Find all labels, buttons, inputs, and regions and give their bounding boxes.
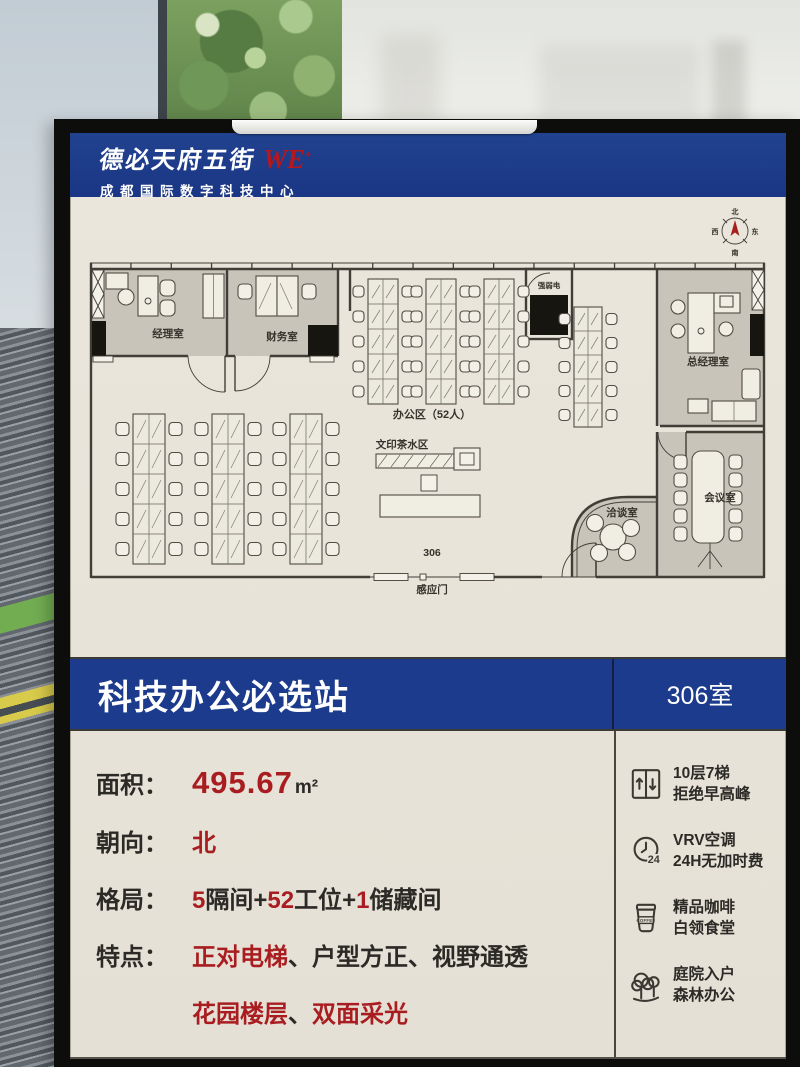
- svg-text:24: 24: [648, 854, 660, 866]
- feature-seg: 户型方正: [312, 937, 408, 972]
- trees-icon: [628, 967, 664, 1003]
- amenity-line1: VRV空调: [673, 830, 763, 851]
- amenity-text: VRV空调 24H无加时费: [673, 830, 763, 872]
- feature-seg: 、: [408, 937, 432, 972]
- amenity-hvac: 24 VRV空调 24H无加时费: [628, 830, 786, 872]
- detail-row-area: 面积： 495.67 m²: [96, 765, 614, 801]
- glass-reflection: [712, 40, 746, 130]
- label-print-tea: 文印茶水区: [375, 438, 429, 451]
- layout-seg: 1: [356, 887, 369, 915]
- room-label-gm: 总经理室: [687, 355, 729, 368]
- detail-label: 面积：: [96, 765, 192, 800]
- details-section: 面积： 495.67 m² 朝向： 北 格局： 5 隔间+ 52 工位+: [70, 731, 786, 1059]
- area-unit: m²: [295, 777, 318, 799]
- amenity-elevator: 10层7梯 拒绝早高峰: [628, 763, 786, 805]
- poster-header: 德必天府五街WE+ 成都国际数字科技中心: [70, 133, 786, 197]
- amenity-garden: 庭院入户 森林办公: [628, 964, 786, 1006]
- layout-seg: 储藏间: [369, 880, 441, 915]
- feature-seg: 、: [288, 994, 312, 1029]
- elevator-icon: [628, 766, 664, 802]
- we-logo-sup: +: [305, 149, 311, 161]
- glass-reflection: [540, 45, 700, 120]
- feature-seg: 花园楼层: [192, 994, 288, 1029]
- detail-label: 朝向：: [96, 823, 192, 858]
- floor-plan: 北 东 南 西: [70, 197, 786, 657]
- label-sensor-door: 感应门: [416, 583, 448, 596]
- feature-seg: 正对电梯: [192, 937, 288, 972]
- amenity-line2: 24H无加时费: [673, 851, 763, 872]
- area-value: 495.67: [192, 765, 293, 801]
- svg-text:北: 北: [732, 207, 739, 216]
- feature-seg: 视野通透: [432, 937, 528, 972]
- feature-seg: 、: [288, 937, 312, 972]
- orientation-value: 北: [192, 823, 216, 858]
- striped-carpet: [0, 328, 60, 1067]
- svg-text:东: 东: [752, 227, 759, 236]
- feature-seg: 双面采光: [312, 994, 408, 1029]
- amenity-text: 10层7梯 拒绝早高峰: [673, 763, 751, 805]
- room-label-manager: 经理室: [152, 327, 184, 340]
- room-label-finance: 财务室: [265, 330, 298, 343]
- amenity-line2: 拒绝早高峰: [673, 784, 751, 805]
- svg-text:南: 南: [732, 248, 739, 257]
- glass-reflection: [380, 35, 440, 125]
- amenity-line1: 精品咖啡: [673, 897, 735, 918]
- room-label-meeting: 会议室: [704, 491, 736, 504]
- detail-row-layout: 格局： 5 隔间+ 52 工位+ 1 储藏间: [96, 880, 614, 915]
- layout-seg: 工位+: [294, 880, 356, 915]
- svg-text:COFFEE: COFFEE: [637, 918, 656, 923]
- layout-seg: 5: [192, 887, 205, 915]
- amenity-line1: 10层7梯: [673, 763, 751, 784]
- we-logo: WE+: [263, 144, 311, 174]
- label-office-area: 办公区（52人）: [393, 407, 471, 421]
- amenity-coffee: COFFEE 精品咖啡 白领食堂: [628, 897, 786, 939]
- amenity-line2: 森林办公: [673, 985, 735, 1006]
- title-banner: 科技办公必选站 306室: [70, 657, 786, 731]
- detail-row-orientation: 朝向： 北: [96, 823, 614, 858]
- floor-plan-drawing: 北 东 南 西: [80, 199, 770, 651]
- detail-label: 格局：: [96, 880, 192, 915]
- window-with-trees: [158, 0, 364, 138]
- layout-seg: 隔间+: [205, 880, 267, 915]
- amenity-line1: 庭院入户: [673, 964, 735, 985]
- amenity-line2: 白领食堂: [673, 918, 735, 939]
- amenity-text: 庭院入户 森林办公: [673, 964, 735, 1006]
- clock-24-icon: 24: [628, 833, 664, 869]
- poster-body: 德必天府五街WE+ 成都国际数字科技中心 北 东: [70, 133, 786, 1059]
- amenities-column: 10层7梯 拒绝早高峰 24 VRV空调 24H无: [614, 731, 786, 1057]
- detail-row-features: 特点： 正对电梯 、 户型方正 、 视野通透: [96, 937, 614, 972]
- amenity-text: 精品咖啡 白领食堂: [673, 897, 735, 939]
- details-list: 面积： 495.67 m² 朝向： 北 格局： 5 隔间+ 52 工位+: [70, 731, 614, 1057]
- photo-scene: 德必天府五街WE+ 成都国际数字科技中心 北 东: [0, 0, 800, 1067]
- detail-label: 特点：: [96, 937, 192, 972]
- svg-text:强弱电: 强弱电: [538, 280, 561, 290]
- banner-title: 科技办公必选站: [70, 659, 612, 729]
- layout-seg: 52: [267, 887, 294, 915]
- detail-row-features-2: 花园楼层 、 双面采光: [96, 994, 614, 1029]
- coffee-icon: COFFEE: [628, 900, 664, 936]
- compass-icon: 北 东 南 西: [712, 207, 759, 257]
- label-room-number: 306: [423, 547, 441, 559]
- brand-row: 德必天府五街WE+: [100, 140, 786, 175]
- poster-clamp: [232, 120, 537, 134]
- room-label-negotiation: 洽谈室: [606, 506, 638, 519]
- brand-name: 德必天府五街: [98, 140, 259, 175]
- svg-text:西: 西: [712, 228, 719, 236]
- banner-room-number: 306室: [612, 659, 786, 729]
- floorplan-poster: 德必天府五街WE+ 成都国际数字科技中心 北 东: [54, 119, 800, 1067]
